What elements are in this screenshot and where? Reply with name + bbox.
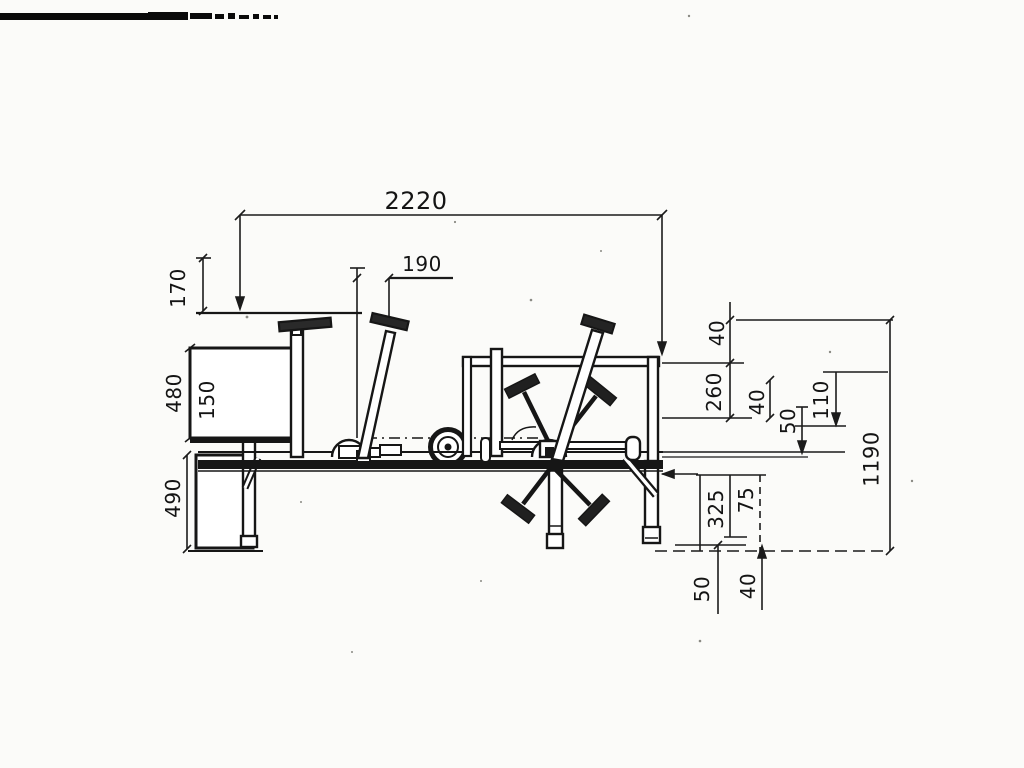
- hand-lever: [358, 313, 409, 458]
- wheel: [431, 430, 466, 465]
- dim-label-490: 490: [163, 478, 183, 518]
- machine: [188, 313, 663, 551]
- dim-label-150: 150: [197, 380, 217, 420]
- dim-1190: [886, 316, 894, 555]
- dim-label-190: 190: [402, 254, 442, 274]
- scan-noise: [246, 15, 914, 653]
- left-leg: [241, 437, 258, 547]
- dim-label-2220: 2220: [384, 189, 447, 213]
- dim-label-480: 480: [164, 373, 184, 413]
- scan-artifact: [0, 12, 278, 20]
- dim-label-50-axle: 50: [778, 408, 798, 434]
- dim-label-110: 110: [811, 380, 831, 420]
- dim-label-75: 75: [736, 487, 756, 513]
- dim-label-40-upper: 40: [707, 320, 727, 346]
- dim-label-40-mid: 40: [747, 389, 767, 415]
- dim-170: [196, 254, 211, 315]
- dim-label-170: 170: [168, 268, 188, 308]
- right-leg: [643, 461, 660, 543]
- main-arm: [552, 315, 615, 461]
- dim-190: [350, 268, 453, 438]
- dim-label-325: 325: [706, 489, 726, 529]
- center-leg: [547, 470, 563, 548]
- technical-drawing-page: 2220 190 170 480 150 490 40 260 40 50 11…: [0, 0, 1024, 768]
- dim-label-40-ground: 40: [738, 573, 758, 599]
- dim-label-50-ground: 50: [692, 576, 712, 602]
- dim-label-1190: 1190: [862, 431, 883, 486]
- machine-elevation-drawing: [0, 0, 1024, 768]
- dim-label-260: 260: [704, 372, 724, 412]
